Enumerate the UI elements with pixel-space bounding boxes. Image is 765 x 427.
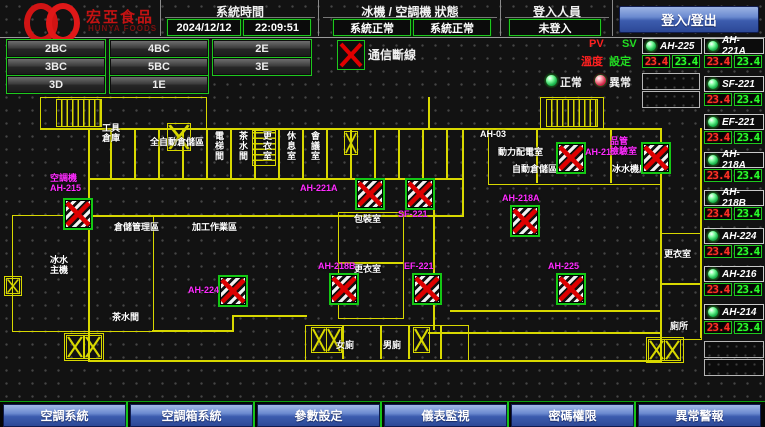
floor-button-4bc[interactable]: 4BC	[110, 40, 208, 57]
wall-segment	[380, 325, 382, 359]
login-logout-button[interactable]: 登入/登出	[619, 6, 759, 33]
legend-abnormal-label: 異常	[609, 74, 631, 90]
status-led-icon	[645, 40, 657, 52]
equipment-name: AH-221A	[722, 35, 763, 57]
equipment-values-ah-214: 23.423.4	[704, 321, 762, 334]
separator	[318, 0, 319, 36]
floor-button-3d[interactable]: 3D	[7, 76, 105, 93]
wall-segment	[374, 128, 376, 178]
chiller-status-value: 系統正常	[333, 19, 411, 36]
equipment-values-ah-221a: 23.423.4	[704, 55, 762, 68]
hmi-screen: { "header": { "logo": {"brand": "宏亞食品", …	[0, 0, 765, 426]
wall-segment	[302, 128, 304, 178]
wall-segment	[422, 128, 424, 178]
wall-segment	[326, 128, 328, 178]
floor-button-1e[interactable]: 1E	[110, 76, 208, 93]
status-led-icon	[707, 192, 719, 204]
ahu-alarm-icon-ah-218a[interactable]	[510, 205, 540, 237]
wall-segment	[428, 97, 430, 128]
wall-segment	[232, 315, 234, 332]
floor-selector: 2BC4BC2E3BC5BC3E3D1E	[5, 40, 325, 93]
sv-value: 23.4	[734, 283, 762, 296]
status-led-icon	[707, 40, 719, 52]
ahu-alarm-icon-ah-225[interactable]	[556, 273, 586, 305]
floor-button-3bc[interactable]: 3BC	[7, 58, 105, 75]
shaft-x-icon	[344, 131, 358, 155]
sv-value: 23.4	[734, 321, 762, 334]
status-led-icon	[707, 268, 719, 280]
shaft-x-icon	[6, 278, 20, 294]
equipment-values-ah-218a: 23.423.4	[704, 169, 762, 182]
stairs-icon	[56, 99, 102, 127]
nav-button-5[interactable]: 密碼權限	[511, 404, 634, 427]
logo-icon	[46, 3, 80, 43]
sv-value: 23.4	[734, 245, 762, 258]
wall-segment	[230, 128, 232, 178]
sv-value: 23.4	[734, 169, 762, 182]
equipment-name: AH-216	[722, 269, 756, 280]
empty-slot	[642, 73, 700, 90]
equipment-ef-221[interactable]: EF-221	[704, 114, 764, 130]
ahu-label-ef-221: EF-221	[404, 261, 434, 271]
ahu-alarm-icon-ah-224[interactable]	[218, 275, 248, 307]
equipment-ah-218a[interactable]: AH-218A	[704, 152, 764, 168]
ahu-alarm-icon-ah-215[interactable]	[63, 198, 93, 230]
abnormal-led-icon	[594, 74, 607, 87]
ahu-alarm-icon-ah-221a[interactable]	[355, 178, 385, 210]
equipment-name: AH-225	[660, 41, 694, 52]
equipment-ah-224[interactable]: AH-224	[704, 228, 764, 244]
pv-value: 23.4	[704, 283, 732, 296]
equipment-name: AH-224	[722, 231, 756, 242]
room-label: 男廁	[383, 340, 401, 350]
status-led-icon	[707, 154, 719, 166]
equipment-values-sf-221: 23.423.4	[704, 93, 762, 106]
pv-value: 23.4	[704, 321, 732, 334]
ahu-label-ah-218b: AH-218B	[318, 261, 356, 271]
normal-led-icon	[545, 74, 558, 87]
bottom-nav: 空調系統空調箱系統參數設定儀表監視密碼權限異常警報	[0, 401, 765, 427]
equipment-sf-221[interactable]: SF-221	[704, 76, 764, 92]
room-label: 工具 倉庫	[102, 123, 120, 143]
stairs-icon	[546, 99, 598, 127]
system-time-label: 系統時間	[165, 3, 315, 20]
room-label: 包裝室	[354, 214, 381, 224]
comm-offline-label: 通信斷線	[368, 46, 416, 63]
system-date-value: 2024/12/12	[167, 19, 241, 36]
legend-normal-label: 正常	[560, 74, 582, 90]
separator	[612, 0, 613, 36]
empty-slot	[642, 91, 700, 108]
shaft-x-icon	[84, 335, 102, 359]
equipment-ah-214[interactable]: AH-214	[704, 304, 764, 320]
status-led-icon	[707, 306, 719, 318]
pv-value: 23.4	[704, 207, 732, 220]
nav-button-1[interactable]: 空調系統	[3, 404, 126, 427]
equipment-ah-221a[interactable]: AH-221A	[704, 38, 764, 54]
floor-button-2bc[interactable]: 2BC	[7, 40, 105, 57]
empty-slot	[704, 359, 764, 376]
pv-sub-header: 溫度	[581, 53, 603, 69]
ahu-label-ah-215: 空調機 AH-215	[50, 173, 81, 193]
floor-button-3e[interactable]: 3E	[213, 58, 311, 75]
wall-segment	[450, 310, 662, 312]
wall-segment	[206, 128, 208, 178]
login-user-label: 登入人員	[505, 3, 609, 20]
sv-value: 23.4	[734, 55, 762, 68]
sv-header: SV	[622, 38, 637, 50]
sv-value: 23.4	[734, 93, 762, 106]
wall-segment	[134, 128, 136, 178]
equipment-values-ah-216: 23.423.4	[704, 283, 762, 296]
status-led-icon	[707, 230, 719, 242]
nav-separator	[380, 402, 382, 427]
equipment-name: SF-221	[722, 79, 755, 90]
equipment-values-ah-218b: 23.423.4	[704, 207, 762, 220]
top-bar: 宏亞食品 HUNYA FOODS 系統時間 2024/12/12 22:09:5…	[0, 0, 765, 38]
equipment-panel: AH-22523.423.4AH-221A23.423.4SF-22123.42…	[641, 35, 765, 385]
status-led-icon	[707, 116, 719, 128]
room-label: 動力配電室	[498, 147, 543, 157]
shaft-x-icon	[66, 335, 84, 359]
machine-status-label: 冰機 / 空調機 狀態	[323, 3, 497, 20]
equipment-values-ah-224: 23.423.4	[704, 245, 762, 258]
ahu-label-ah-221a: AH-221A	[300, 183, 338, 193]
ahu-status-value: 系統正常	[413, 19, 491, 36]
equipment-ah-216[interactable]: AH-216	[704, 266, 764, 282]
equipment-ah-218b[interactable]: AH-218B	[704, 190, 764, 206]
room-label: 休息室	[286, 131, 295, 161]
room-label: 全自動倉儲區	[150, 137, 204, 147]
wall-segment	[462, 128, 464, 217]
room-label: 女廁	[336, 340, 354, 350]
pv-value: 23.4	[704, 93, 732, 106]
ahu-alarm-icon-ah-214[interactable]	[556, 142, 586, 174]
wall-segment	[408, 325, 410, 359]
equipment-name: AH-218A	[722, 149, 763, 171]
room-label: 茶水間	[112, 312, 139, 322]
equipment-values-ef-221: 23.423.4	[704, 131, 762, 144]
equipment-name: EF-221	[722, 117, 755, 128]
pv-header: PV	[589, 38, 604, 50]
shaft-x-icon	[413, 327, 430, 353]
shaft-x-icon	[311, 327, 327, 353]
room-label: 冰水 主機	[50, 255, 68, 275]
wall-segment	[158, 128, 160, 178]
ahu-label-ah-225: AH-225	[548, 261, 579, 271]
ahu-label-sf-221: SF-221	[398, 209, 428, 219]
nav-separator	[507, 402, 509, 427]
pv-value: 23.4	[704, 55, 732, 68]
pv-value: 23.4	[704, 245, 732, 258]
separator	[160, 0, 161, 36]
room-label: 會議室	[310, 131, 319, 161]
ahu-alarm-icon-sf-221[interactable]	[405, 178, 435, 210]
system-clock-value: 22:09:51	[243, 19, 311, 36]
ahu-alarm-icon-ah-218b[interactable]	[329, 273, 359, 305]
nav-separator	[253, 402, 255, 427]
nav-button-2[interactable]: 空調箱系統	[130, 404, 253, 427]
brand-name-en: HUNYA FOODS	[88, 24, 157, 33]
room-label: 自動倉儲區	[512, 164, 557, 174]
room-label: 加工作業區	[192, 222, 237, 232]
wall-segment	[232, 315, 307, 317]
ahu-label-ah-218a: AH-218A	[502, 193, 540, 203]
sv-value: 23.4	[672, 55, 700, 68]
wall-segment	[278, 128, 280, 178]
floor-button-5bc[interactable]: 5BC	[110, 58, 208, 75]
empty-slot	[704, 341, 764, 358]
equipment-name: AH-214	[722, 307, 756, 318]
equipment-values-ah-225: 23.423.4	[642, 55, 700, 68]
room-label: 倉儲管理區	[114, 222, 159, 232]
pv-value: 23.4	[704, 169, 732, 182]
status-led-icon	[707, 78, 719, 90]
sv-sub-header: 設定	[609, 53, 631, 69]
room-label: 更衣室	[262, 131, 271, 161]
wall-segment	[152, 330, 234, 332]
room-label: AH-03	[480, 129, 506, 139]
nav-separator	[634, 402, 636, 427]
nav-button-4[interactable]: 儀表監視	[384, 404, 507, 427]
nav-button-6[interactable]: 異常警報	[638, 404, 761, 427]
sv-value: 23.4	[734, 131, 762, 144]
nav-button-3[interactable]: 參數設定	[257, 404, 380, 427]
nav-separator	[126, 402, 128, 427]
room-label: 茶水間	[238, 131, 247, 161]
pv-value: 23.4	[704, 131, 732, 144]
room-label: 電梯間	[214, 131, 223, 161]
sv-value: 23.4	[734, 207, 762, 220]
wall-segment	[428, 332, 662, 334]
wall-segment	[446, 128, 448, 178]
ahu-label-ah-224: AH-224	[188, 285, 219, 295]
comm-offline-icon	[337, 40, 365, 70]
ahu-label-qc-ahu: 品管 檢驗室	[610, 136, 637, 156]
wall-segment	[440, 325, 442, 359]
login-status-value: 未登入	[509, 19, 601, 36]
equipment-ah-225[interactable]: AH-225	[642, 38, 702, 54]
wall-segment	[398, 128, 400, 178]
pv-value: 23.4	[642, 55, 670, 68]
floor-button-2e[interactable]: 2E	[213, 40, 311, 57]
equipment-name: AH-218B	[722, 187, 763, 209]
ahu-alarm-icon-ef-221[interactable]	[412, 273, 442, 305]
separator	[500, 0, 501, 36]
